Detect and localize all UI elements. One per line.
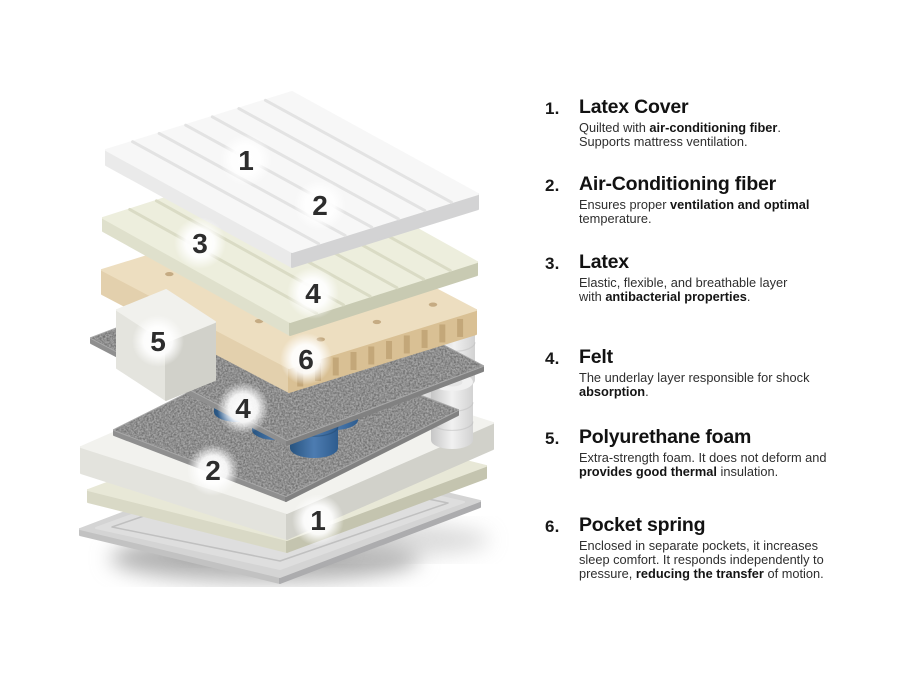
- mattress-layers-diagram: 123456421 1. Latex Cover Quilted with ai…: [0, 0, 900, 675]
- legend-item-number: 4.: [545, 347, 579, 369]
- legend-item-air-conditioning-fiber: 2. Air-Conditioning fiber Ensures proper…: [545, 174, 875, 226]
- legend-item-description: The underlay layer responsible for shock…: [579, 371, 875, 399]
- legend-item-title: Latex: [579, 252, 875, 272]
- legend-item-title: Pocket spring: [579, 515, 875, 535]
- legend-item-title: Felt: [579, 347, 875, 367]
- legend-item-latex: 3. Latex Elastic, flexible, and breathab…: [545, 252, 875, 304]
- legend-item-description: Enclosed in separate pockets, it increas…: [579, 539, 875, 580]
- legend-item-number: 3.: [545, 252, 579, 274]
- legend-item-description: Elastic, flexible, and breathable layerw…: [579, 276, 875, 304]
- legend-item-pocket-spring: 6. Pocket spring Enclosed in separate po…: [545, 515, 875, 580]
- legend-item-number: 2.: [545, 174, 579, 196]
- legend-item-number: 1.: [545, 97, 579, 119]
- legend-item-title: Air-Conditioning fiber: [579, 174, 875, 194]
- legend-panel: 1. Latex Cover Quilted with air-conditio…: [0, 0, 900, 675]
- legend-item-description: Quilted with air-conditioning fiber.Supp…: [579, 121, 875, 149]
- legend-item-title: Latex Cover: [579, 97, 875, 117]
- legend-item-number: 6.: [545, 515, 579, 537]
- legend-item-number: 5.: [545, 427, 579, 449]
- legend-item-description: Extra-strength foam. It does not deform …: [579, 451, 875, 479]
- legend-item-latex-cover: 1. Latex Cover Quilted with air-conditio…: [545, 97, 875, 149]
- legend-item-title: Polyurethane foam: [579, 427, 875, 447]
- legend-item-polyurethane-foam: 5. Polyurethane foam Extra-strength foam…: [545, 427, 875, 479]
- legend-item-description: Ensures proper ventilation and optimal t…: [579, 198, 875, 226]
- legend-item-felt: 4. Felt The underlay layer responsible f…: [545, 347, 875, 399]
